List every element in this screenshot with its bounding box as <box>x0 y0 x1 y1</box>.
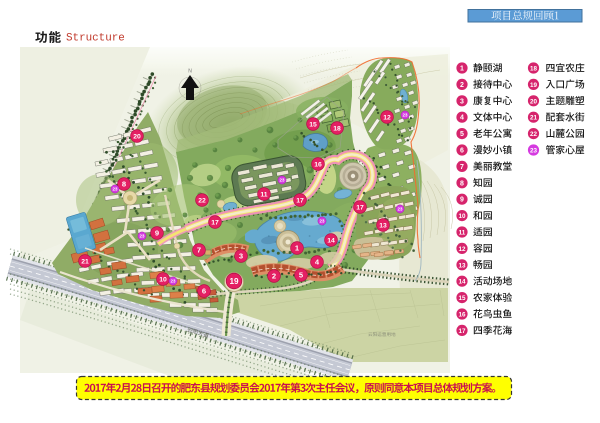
svg-text:18: 18 <box>530 66 538 73</box>
svg-text:12: 12 <box>383 114 391 121</box>
svg-text:10: 10 <box>159 276 167 283</box>
svg-text:23: 23 <box>280 178 285 183</box>
svg-text:11: 11 <box>459 230 466 237</box>
svg-text:11: 11 <box>260 191 267 198</box>
svg-text:23: 23 <box>140 234 145 239</box>
svg-text:21: 21 <box>81 258 89 265</box>
svg-text:16: 16 <box>314 161 322 168</box>
svg-text:8: 8 <box>460 180 464 187</box>
svg-text:5: 5 <box>460 131 464 138</box>
svg-text:20: 20 <box>133 133 141 140</box>
svg-text:3: 3 <box>460 98 464 105</box>
svg-text:22: 22 <box>198 197 206 204</box>
svg-text:7: 7 <box>197 246 201 255</box>
svg-text:1: 1 <box>460 66 464 73</box>
svg-text:19: 19 <box>530 82 538 89</box>
svg-text:10: 10 <box>458 213 466 220</box>
svg-text:23: 23 <box>171 279 176 284</box>
svg-text:16: 16 <box>458 312 466 319</box>
svg-text:4: 4 <box>460 115 464 122</box>
svg-text:23: 23 <box>398 207 403 212</box>
svg-text:15: 15 <box>458 295 466 302</box>
svg-text:9: 9 <box>155 229 159 238</box>
svg-text:23: 23 <box>113 187 118 192</box>
svg-text:12: 12 <box>458 246 466 253</box>
svg-text:17: 17 <box>296 197 304 204</box>
svg-text:2: 2 <box>272 272 276 281</box>
svg-text:6: 6 <box>460 148 464 155</box>
svg-text:23: 23 <box>320 219 325 224</box>
svg-text:17: 17 <box>356 204 364 211</box>
svg-text:15: 15 <box>309 121 317 128</box>
svg-text:14: 14 <box>327 237 335 244</box>
svg-text:22: 22 <box>530 131 538 138</box>
svg-text:Structure: Structure <box>66 32 125 44</box>
svg-text:6: 6 <box>202 287 206 296</box>
svg-text:9: 9 <box>460 197 464 204</box>
svg-text:13: 13 <box>458 262 466 269</box>
svg-text:7: 7 <box>460 164 464 171</box>
svg-text:2: 2 <box>460 82 464 89</box>
svg-text:13: 13 <box>379 222 387 229</box>
svg-text:19: 19 <box>229 277 239 286</box>
svg-text:23: 23 <box>530 148 538 155</box>
svg-text:23: 23 <box>403 113 408 118</box>
svg-text:14: 14 <box>458 279 466 286</box>
svg-text:17: 17 <box>458 328 466 335</box>
svg-text:8: 8 <box>122 180 126 189</box>
svg-text:21: 21 <box>530 115 538 122</box>
svg-text:20: 20 <box>530 98 538 105</box>
svg-text:3: 3 <box>239 252 243 261</box>
svg-text:N: N <box>188 69 192 75</box>
svg-text:18: 18 <box>333 125 341 132</box>
svg-text:17: 17 <box>211 219 219 226</box>
